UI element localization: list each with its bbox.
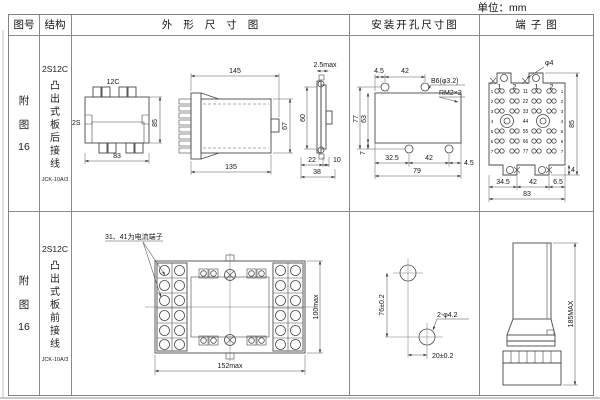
dim-label: 42 (401, 68, 409, 75)
top-mounting-tabs (93, 87, 136, 97)
dim-label: 67 (282, 122, 289, 130)
dim-label: 42 (529, 179, 537, 186)
model-code: 2S12C (42, 244, 68, 254)
dim-label: 7 (360, 151, 367, 155)
terminal-drawing-row1: φ4 1 2 1 2 11 (479, 57, 591, 207)
svg-text:3: 3 (561, 109, 564, 114)
svg-text:2: 2 (491, 99, 494, 104)
dim-label: 76±0.2 (379, 294, 386, 315)
unit-label: 单位：mm (452, 0, 552, 13)
type-code: JCK-10A/3 (42, 357, 69, 363)
col-label: 1 (535, 84, 539, 91)
col-label: 1 (498, 84, 502, 91)
fig-line: 图 (19, 297, 30, 312)
structure-cell-row2: 2S12C 凸出式板前接线 JCK-10A/3 (39, 211, 71, 395)
dim-label: 85 (152, 119, 159, 127)
current-terminal-note: 31、41为电流端子 (105, 232, 163, 241)
screw-cross-marks (514, 167, 552, 173)
structure-text: 凸出式板前接线 (48, 260, 62, 351)
dim-label: 60 (300, 114, 307, 122)
fig-line: 附 (19, 273, 30, 288)
dim-label: 4 (571, 167, 575, 174)
dim-label: 145 (229, 68, 241, 75)
mounting-hole (405, 145, 413, 153)
install-hole-drawing-row1: 4.5 42 B6(φ3.2) RM2×2 77 63 7 32.5 42 4.… (353, 59, 478, 207)
fig-line: 附 (19, 93, 30, 108)
catalog-page: 单位：mm 图号 结构 外形尺寸图 安装开孔尺寸图 端子图 附 图 16 2S1… (0, 0, 600, 400)
dim-label: 4.5 (464, 160, 474, 167)
outline-profile-view-drawing: 2.5max 60 22 10 38 (295, 57, 353, 197)
dim-label: 2.5max (314, 62, 337, 69)
header-fig-no: 图号 (9, 17, 39, 33)
dim-label: 38 (313, 169, 321, 176)
svg-text:44: 44 (523, 119, 529, 125)
row-divider (9, 211, 593, 212)
svg-text:4: 4 (491, 119, 494, 124)
dim-label: 22 (308, 157, 316, 164)
header-install: 安装开孔尺寸图 (349, 17, 479, 33)
terminal-drawing-row2: 185MAX (489, 227, 593, 393)
spec-table: 图号 结构 外形尺寸图 安装开孔尺寸图 端子图 附 图 16 2S12C 凸出式… (8, 14, 594, 396)
mounting-hole (381, 83, 389, 91)
svg-text:6: 6 (561, 139, 564, 144)
type-code: JCK-10A/3 (42, 177, 69, 183)
header-outline: 外形尺寸图 (71, 17, 349, 33)
svg-text:33: 33 (523, 109, 529, 115)
fig-no-cell-row1: 附 图 16 (9, 35, 39, 211)
dim-label: 4.5 (374, 68, 384, 75)
header-structure: 结构 (39, 17, 71, 33)
header-divider (9, 35, 593, 36)
outline-drawing-row2: 31、41为电流端子 (99, 225, 334, 385)
thread-spec-label: RM2×2 (439, 90, 462, 97)
hole-spec-label: B6(φ3.2) (431, 78, 459, 85)
svg-text:77: 77 (523, 149, 529, 155)
dim-label: 135 (225, 164, 237, 171)
dim-label: 185MAX (568, 300, 575, 327)
mounting-hole (421, 83, 429, 91)
scan-edge-left (2, 30, 4, 398)
terminal-pins (179, 99, 191, 153)
dim-label: 32.5 (385, 155, 399, 162)
dim-label: 2S (72, 120, 81, 127)
fig-line: 16 (18, 141, 30, 153)
dim-label: 34.5 (496, 179, 510, 186)
svg-text:22: 22 (523, 99, 529, 105)
hole-spec-label: 2-φ4.2 (437, 312, 458, 319)
outline-front-view-drawing: 12C 2S 85 83 (71, 57, 171, 192)
dim-label: 63 (361, 115, 368, 123)
fig-line: 16 (18, 321, 30, 333)
dim-label: 83 (523, 191, 531, 198)
dim-label: 100max (313, 294, 320, 319)
svg-text:7: 7 (491, 149, 494, 154)
bottom-mounting-tabs (99, 143, 143, 153)
svg-text:11: 11 (523, 89, 528, 95)
terminal-number-labels: 11 22 33 44 55 66 77 (523, 89, 529, 155)
col-label: 2 (550, 84, 554, 91)
install-hole-drawing-row2: 76±0.2 20±0.2 2-φ4.2 (353, 225, 478, 391)
col-label: 2 (513, 84, 517, 91)
dim-label: 42 (425, 155, 433, 162)
svg-text:5: 5 (491, 129, 494, 134)
structure-cell-row1: 2S12C 凸出式板后接线 JCK-10A/3 (39, 35, 71, 211)
fig-line: 图 (19, 117, 30, 132)
dim-label: 20±0.2 (432, 353, 453, 360)
dim-label: 6.5 (553, 179, 563, 186)
svg-text:2: 2 (561, 99, 564, 104)
mounting-hole (445, 145, 453, 153)
svg-text:66: 66 (523, 139, 529, 145)
outline-side-view-drawing: 145 135 67 (167, 57, 299, 192)
svg-text:3: 3 (491, 109, 494, 114)
structure-text: 凸出式板后接线 (48, 80, 62, 171)
svg-text:1: 1 (491, 89, 494, 94)
header-terminal: 端子图 (479, 17, 593, 33)
dim-label: 85 (569, 120, 576, 128)
dim-label: 10 (333, 157, 341, 164)
svg-text:6: 6 (491, 139, 494, 144)
dim-label: 77 (353, 115, 360, 123)
svg-text:1: 1 (561, 89, 564, 94)
hole-spec-label: φ4 (545, 60, 554, 67)
svg-text:7: 7 (561, 149, 564, 154)
model-code: 2S12C (42, 64, 68, 74)
dim-label: 152max (218, 363, 243, 370)
scan-edge-bottom (0, 397, 600, 399)
dim-label: 79 (413, 168, 421, 175)
svg-text:4: 4 (561, 119, 564, 124)
svg-text:55: 55 (523, 129, 529, 135)
dim-label: 83 (113, 153, 121, 160)
fig-no-cell-row2: 附 图 16 (9, 211, 39, 395)
dim-label: 12C (107, 79, 120, 86)
svg-text:5: 5 (561, 129, 564, 134)
